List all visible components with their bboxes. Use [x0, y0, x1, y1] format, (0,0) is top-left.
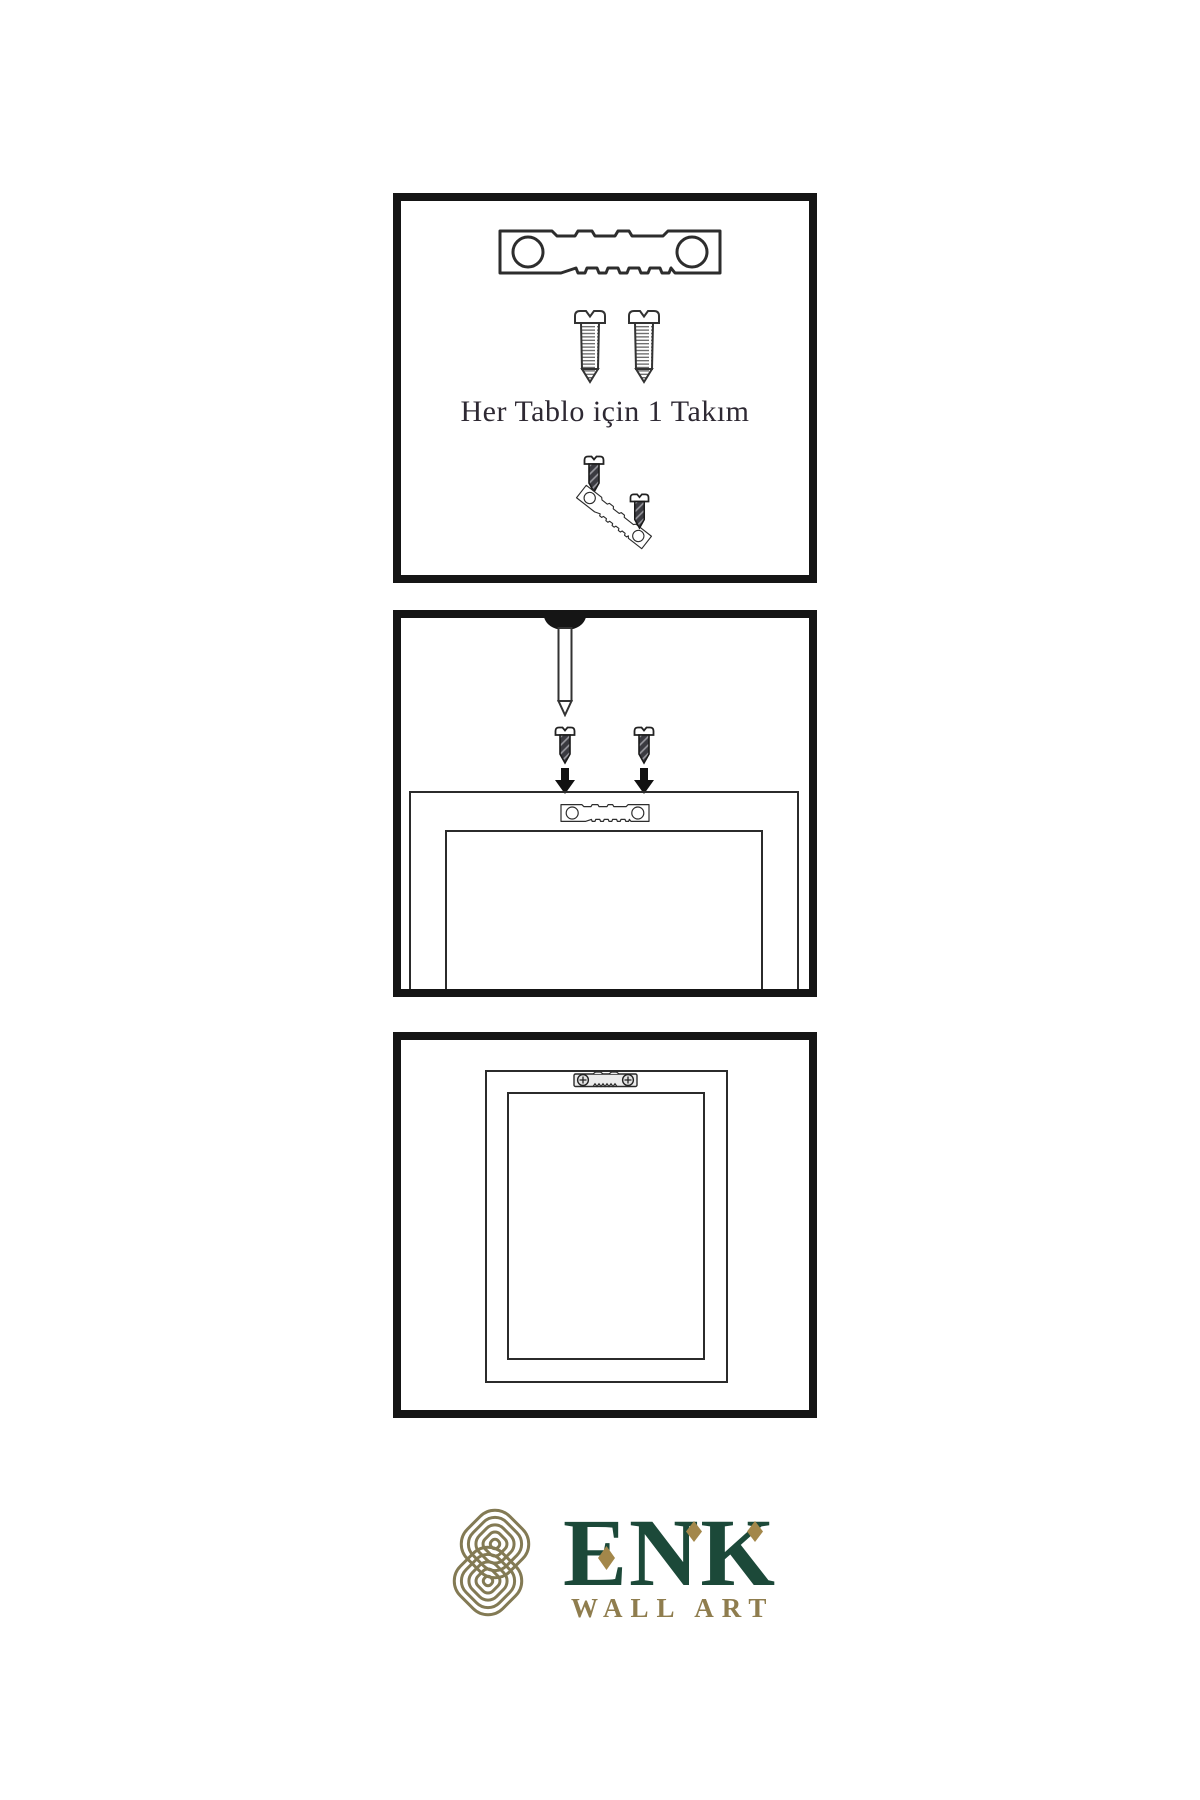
brand-name: ENK	[563, 1505, 777, 1601]
dark-screw-icon	[633, 725, 655, 765]
small-screw-icon	[629, 492, 650, 530]
nail-icon	[543, 617, 587, 717]
screw-icon	[626, 308, 662, 384]
dark-screw-icon	[554, 725, 576, 765]
screw-icon	[572, 308, 608, 384]
step2-panel	[393, 610, 817, 997]
sawtooth-hanger-icon	[497, 222, 723, 282]
kit-caption: Her Tablo için 1 Takım	[401, 395, 809, 429]
mounted-hanger-icon	[573, 1071, 638, 1088]
brand-tagline: WALL ART	[571, 1595, 774, 1622]
tilted-hanger-icon	[559, 462, 669, 572]
step1-panel: Her Tablo için 1 Takım	[393, 193, 817, 583]
picture-frame-inner	[445, 830, 763, 997]
step3-panel	[393, 1032, 817, 1418]
sawtooth-hanger-icon	[553, 801, 657, 825]
picture-frame-inner	[507, 1092, 705, 1360]
knot-icon	[438, 1500, 545, 1625]
instruction-sheet: Her Tablo için 1 Takım	[0, 0, 1200, 1800]
